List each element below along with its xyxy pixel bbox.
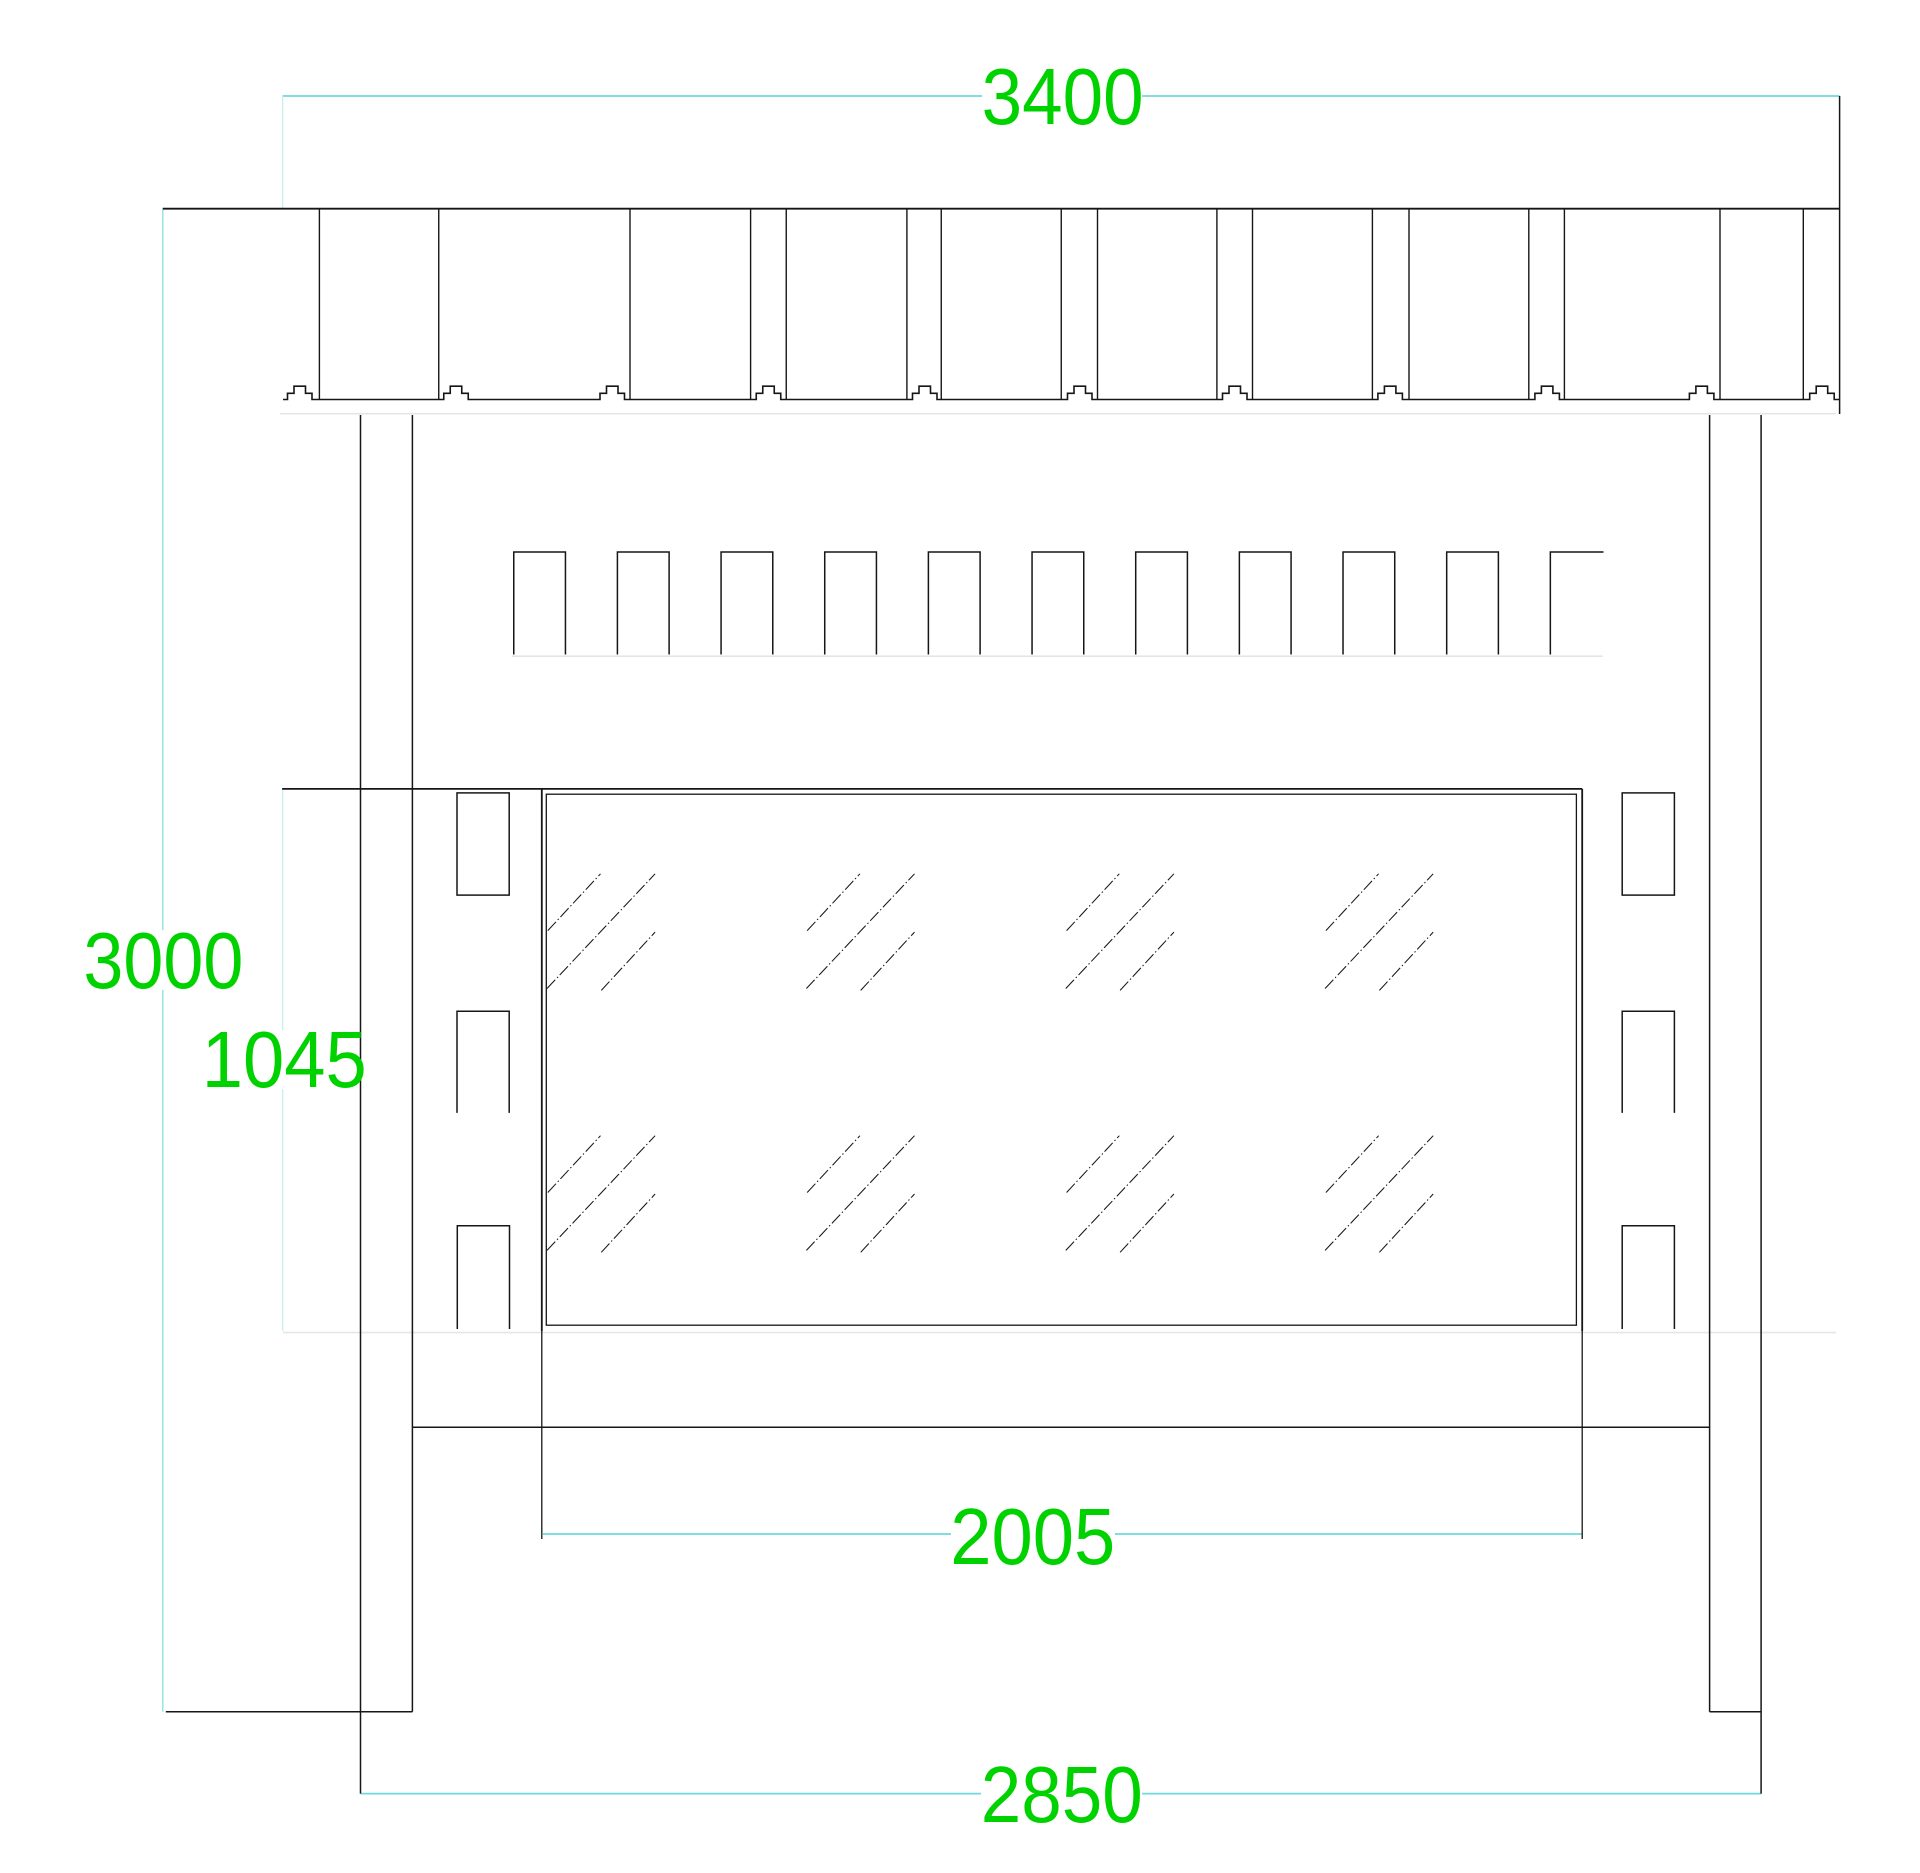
svg-text:2005: 2005 [950,1492,1115,1581]
svg-text:3000: 3000 [83,916,243,1005]
svg-text:3400: 3400 [982,52,1144,141]
svg-text:1045: 1045 [202,1015,367,1104]
svg-text:2850: 2850 [981,1750,1143,1839]
